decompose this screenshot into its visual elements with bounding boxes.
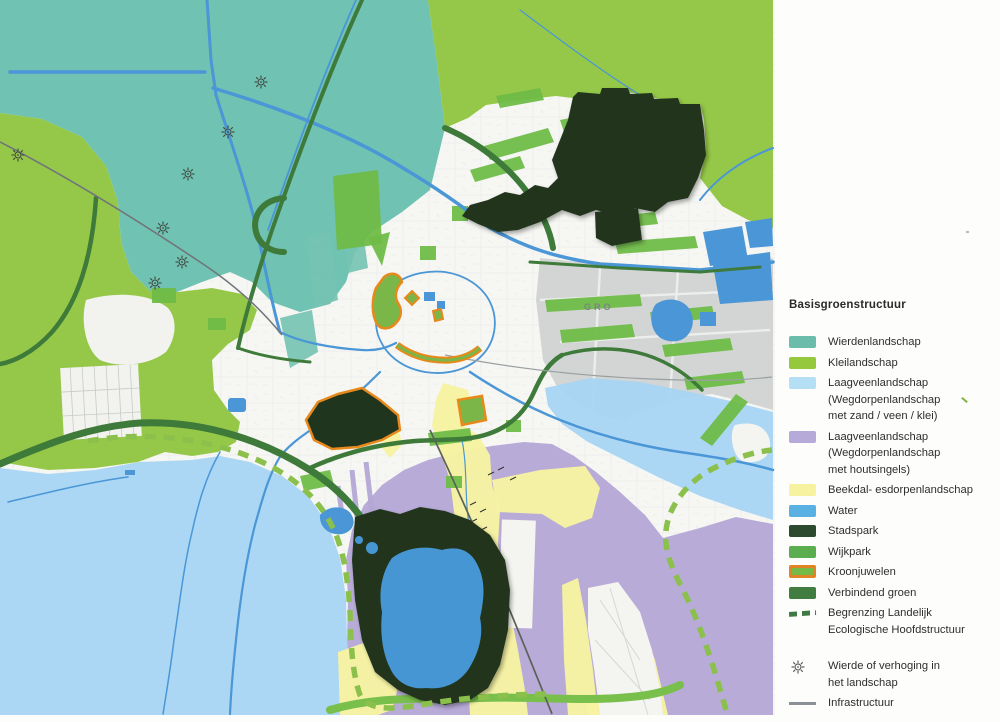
legend-item-wierde: Wierde of verhoging in het landschap xyxy=(789,658,1000,691)
scan-artifact-gray xyxy=(966,231,969,233)
legend-item-laagveen-zand: Laagveenlandschap (Wegdorpenlandschap me… xyxy=(789,375,1000,425)
legend-item-verbindend-groen: Verbindend groen xyxy=(789,585,1000,602)
swatch-kleilandschap xyxy=(789,357,816,369)
swatch-wierdenlandschap xyxy=(789,336,816,348)
legend-item-infrastructuur: Infrastructuur xyxy=(789,695,1000,712)
swatch-wijkpark xyxy=(789,546,816,558)
swatch-verbindend-groen xyxy=(789,587,816,599)
swatch-eco-begrenzing xyxy=(789,610,816,617)
swatch-water xyxy=(789,505,816,517)
map-canvas: GRO xyxy=(0,0,775,717)
swatch-laagveen-zand xyxy=(789,377,816,389)
legend-item-laagveen-houtsingels: Laagveenlandschap (Wegdorpenlandschap me… xyxy=(789,429,1000,479)
scanned-map-page: { "legend": { "title": "Basisgroenstruct… xyxy=(0,0,1000,717)
basemap-city-label: GRO xyxy=(584,302,614,312)
legend-panel: Basisgroenstructuur Wierdenlandschap Kle… xyxy=(789,299,1000,716)
legend-item-kleilandschap: Kleilandschap xyxy=(789,355,1000,372)
swatch-kroonjuwelen xyxy=(789,565,816,578)
legend-item-kroonjuwelen: Kroonjuwelen xyxy=(789,564,1000,581)
swatch-beekdal xyxy=(789,484,816,496)
swatch-infrastructuur xyxy=(789,702,816,705)
legend-item-beekdal: Beekdal- esdorpenlandschap xyxy=(789,482,1000,499)
wierde-star-icon xyxy=(789,659,807,675)
swatch-laagveen-houtsingels xyxy=(789,431,816,443)
legend-spacer xyxy=(789,642,1000,658)
legend-item-wijkpark: Wijkpark xyxy=(789,544,1000,561)
legend-item-water: Water xyxy=(789,503,1000,520)
legend-item-wierdenlandschap: Wierdenlandschap xyxy=(789,334,1000,351)
swatch-stadspark xyxy=(789,525,816,537)
legend-item-stadspark: Stadspark xyxy=(789,523,1000,540)
legend-item-eco-begrenzing: Begrenzing Landelijk Ecologische Hoofdst… xyxy=(789,605,1000,638)
legend-title: Basisgroenstructuur xyxy=(789,299,1000,311)
basisgroenstructuur-map: GRO xyxy=(0,0,775,717)
